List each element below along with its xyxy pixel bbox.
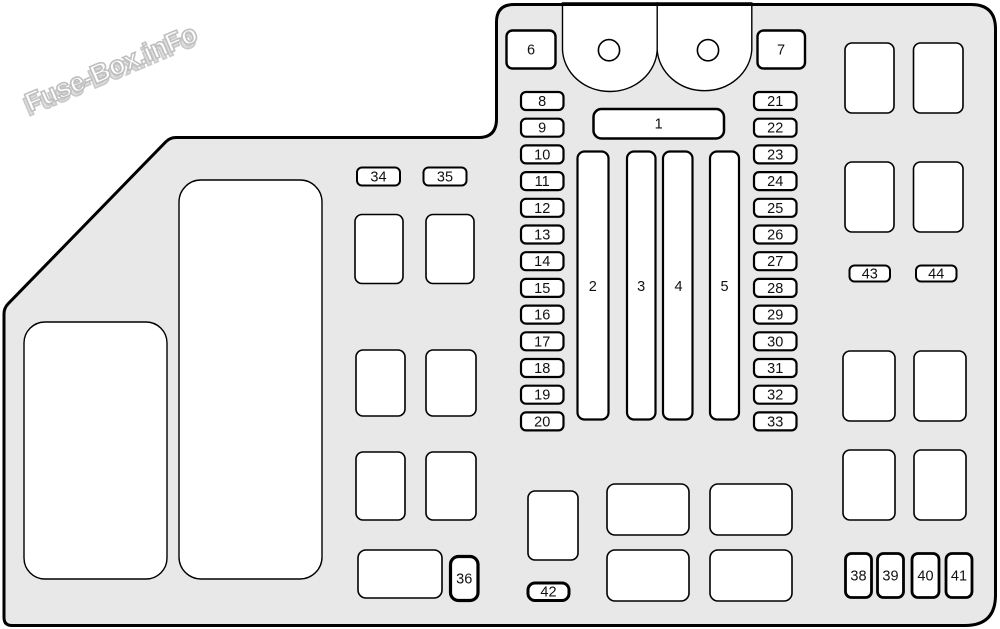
svg-text:13: 13	[534, 228, 550, 244]
svg-text:22: 22	[767, 121, 783, 137]
svg-text:25: 25	[767, 201, 783, 217]
svg-text:32: 32	[767, 388, 783, 404]
svg-text:34: 34	[370, 170, 386, 186]
svg-text:15: 15	[534, 281, 550, 297]
svg-text:11: 11	[535, 174, 550, 190]
svg-text:40: 40	[917, 569, 933, 585]
svg-text:12: 12	[534, 201, 550, 217]
svg-text:28: 28	[767, 281, 783, 297]
svg-text:4: 4	[674, 279, 682, 295]
svg-text:16: 16	[534, 308, 550, 324]
svg-text:1: 1	[655, 117, 663, 133]
svg-text:41: 41	[951, 569, 967, 585]
svg-text:Fuse-Box.inFo: Fuse-Box.inFo	[21, 18, 202, 118]
svg-text:7: 7	[777, 43, 785, 59]
svg-text:30: 30	[767, 334, 783, 350]
svg-text:21: 21	[767, 94, 783, 110]
svg-text:5: 5	[720, 279, 728, 295]
svg-text:18: 18	[534, 361, 550, 377]
svg-text:3: 3	[637, 279, 645, 295]
svg-text:8: 8	[538, 94, 546, 110]
svg-text:35: 35	[437, 170, 453, 186]
svg-text:2: 2	[589, 279, 597, 295]
svg-text:14: 14	[534, 254, 550, 270]
svg-text:38: 38	[850, 569, 866, 585]
svg-text:6: 6	[527, 43, 535, 59]
svg-text:20: 20	[534, 414, 550, 430]
svg-text:39: 39	[882, 569, 898, 585]
svg-text:42: 42	[540, 585, 556, 601]
svg-text:17: 17	[534, 334, 550, 350]
svg-text:43: 43	[862, 267, 878, 283]
svg-text:33: 33	[767, 414, 783, 430]
svg-text:10: 10	[534, 147, 550, 163]
svg-text:24: 24	[767, 174, 783, 190]
svg-text:44: 44	[928, 267, 944, 283]
svg-text:19: 19	[534, 388, 550, 404]
svg-text:27: 27	[767, 254, 783, 270]
svg-text:36: 36	[456, 572, 472, 588]
svg-text:29: 29	[767, 308, 783, 324]
svg-text:26: 26	[767, 228, 783, 244]
svg-text:31: 31	[767, 361, 783, 377]
svg-text:23: 23	[767, 147, 783, 163]
svg-text:9: 9	[538, 121, 546, 137]
